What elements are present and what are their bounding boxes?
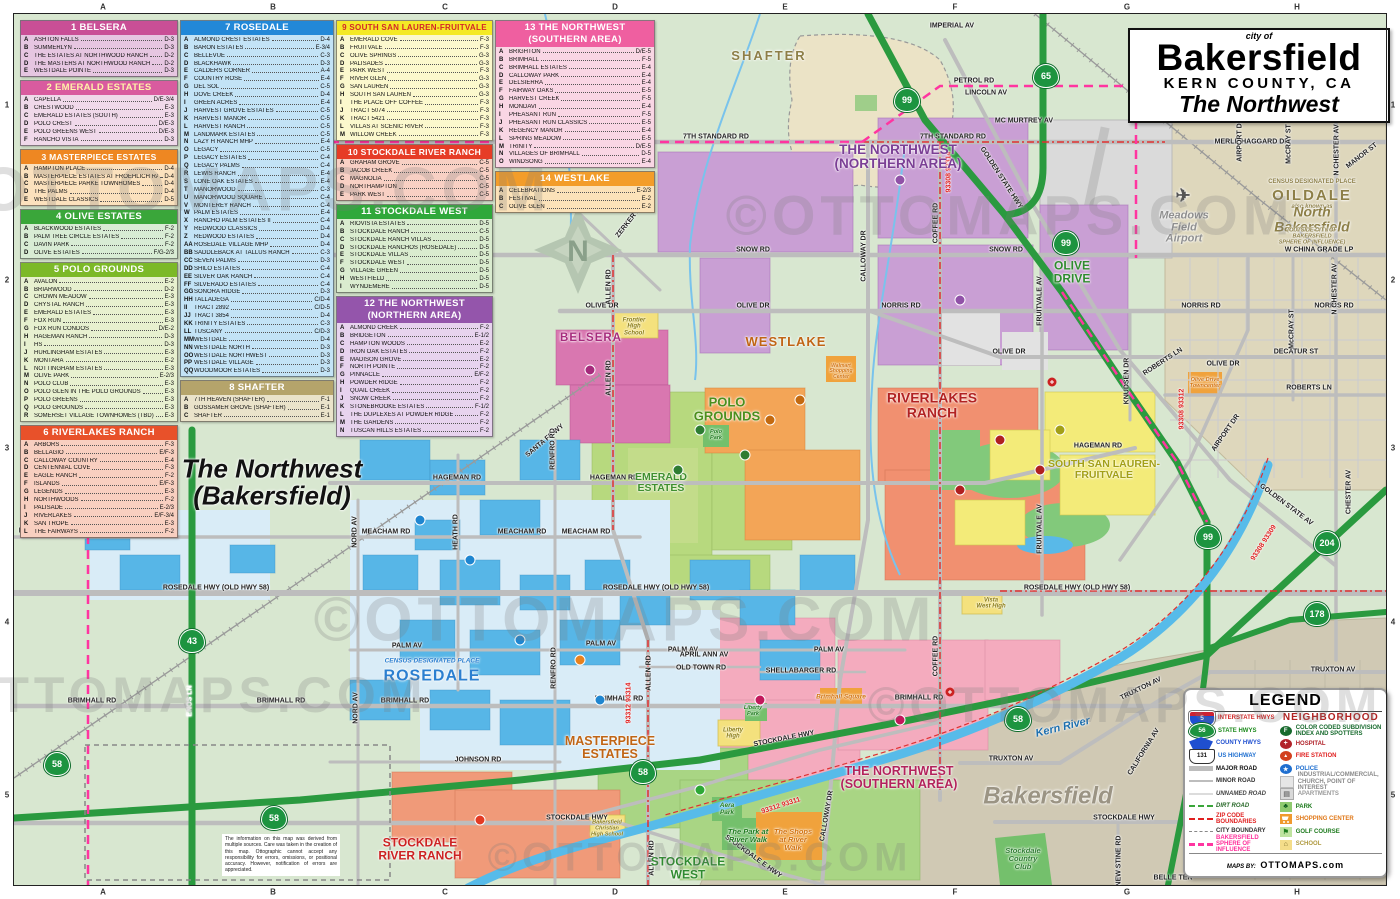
index-entry: DOLIVE ESTATESF/G-2/3: [21, 248, 177, 256]
index-entry: FRIVER GLENG-3: [337, 74, 492, 82]
grid-row-label: 3: [5, 444, 9, 453]
index-entry: ABLACKWOOD ESTATESF-2: [21, 224, 177, 232]
legend-right-column: NEIGHBORHOOD F COLOR CODED SUBDIVISION I…: [1280, 712, 1382, 851]
index-entry: ABRIGHTOND/E-5: [496, 47, 654, 55]
legend-symbol-icon: ⌂: [1280, 840, 1292, 850]
index-entry: VMONTEREY RANCHC-4: [181, 201, 333, 209]
index-entry: DPOLO CRESTD/E-3: [21, 119, 177, 127]
index-entry: AAROSEDALE VILLAGE MHPD-4: [181, 240, 333, 248]
compass-north-label: N: [567, 235, 589, 269]
index-entry: ARIOVISTA ESTATESD-5: [337, 219, 492, 227]
index-entry: OLEGACYC-5: [181, 145, 333, 153]
index-entry: HHAGEMAN RANCHD-3: [21, 332, 177, 340]
index-entry: A7TH HEAVEN (SHAFTER)F-1: [181, 395, 333, 403]
index-entry: EPARK WESTF-3: [337, 67, 492, 75]
legend-item: MAJOR ROAD: [1189, 762, 1280, 775]
title-county: KERN COUNTY, CA: [1130, 76, 1388, 92]
index-entry: GPINNACLEE/F-2: [337, 370, 492, 378]
index-panel-stockdale-west: 11 STOCKDALE WEST ARIOVISTA ESTATESD-5BS…: [336, 204, 493, 293]
index-panel-riverlakes-ranch: 6 RIVERLAKES RANCH AARBORSF-3BBELLAGIOE/…: [20, 425, 178, 538]
index-panel-westlake: 14 WESTLAKE ACELEBRATIONSE-2/3BFESTIVALE…: [495, 171, 655, 213]
index-entry: OOWESTDALE NORTHWESTD-3: [181, 351, 333, 359]
index-entry: GVILLAGE GREEND-5: [337, 266, 492, 274]
index-entry: EPARK WESTC-5: [337, 190, 492, 198]
index-entry: XRANCHO PALM ESTATES IIC-4: [181, 216, 333, 224]
index-entry: BBSADDLEBACK AT TALLUS RANCHC-3: [181, 248, 333, 256]
legend-swatch-icon: [1189, 780, 1213, 782]
legend-symbol-icon: ★: [1280, 764, 1292, 774]
grid-row-label: 5: [5, 791, 9, 800]
index-panel-title: 1 BELSERA: [21, 21, 177, 35]
index-entry: AALMOND CREEKF-2: [337, 323, 492, 331]
legend-swatch-icon: [1189, 805, 1213, 807]
index-entry: FRANCHO VISTAD-3: [21, 135, 177, 143]
index-entry: ACELEBRATIONSE-2/3: [496, 186, 654, 194]
index-entry: IITRACT 2892C/D-5: [181, 303, 333, 311]
index-entry: NNWESTDALE NORTHD-3: [181, 343, 333, 351]
index-panel-south-san-lauren-fruitvale: 9 SOUTH SAN LAUREN-FRUITVALE AEMERALD CO…: [336, 20, 493, 141]
index-entry: JPHEASANT RUN CLASSICSE-5: [496, 118, 654, 126]
legend-item: 131 US HIGHWAY: [1189, 750, 1280, 763]
index-entry: FISLANDSE/F-3: [21, 479, 177, 487]
index-entry: HWESTFIELDD-5: [337, 274, 492, 282]
index-entry: YREDWOOD CLASSICSD-4: [181, 224, 333, 232]
index-entry: LHARVEST RANCHC-5: [181, 122, 333, 130]
index-entry: IPALISADEE-2/3: [21, 503, 177, 511]
index-entry: MLANDMARK ESTATESC-5: [181, 130, 333, 138]
index-entry: MMWESTDALED-4: [181, 335, 333, 343]
legend-item: + HOSPITAL: [1280, 738, 1382, 751]
legend-item: ▲ FIRE STATION: [1280, 750, 1382, 763]
credit-prefix: MAPS BY:: [1227, 864, 1256, 870]
index-entry: EPOLO GREENS WESTD/E-3: [21, 127, 177, 135]
index-entry: WPALM ESTATESE-4: [181, 209, 333, 217]
grid-col-label: H: [1294, 888, 1300, 897]
index-entry: ECALDERS CORNERA-4: [181, 67, 333, 75]
grid-col-label: D: [612, 3, 618, 12]
index-entry: HHTALLADEGAC/D-4: [181, 295, 333, 303]
index-entry: BBARON ESTATESE-3/4: [181, 43, 333, 51]
legend-swatch-icon: [1189, 793, 1213, 795]
legend-item: MINOR ROAD: [1189, 775, 1280, 788]
index-panel-title: 10 STOCKDALE RIVER RANCH: [337, 145, 492, 159]
legend-symbol-icon: [1280, 814, 1292, 824]
index-entry: DTHE PALMSD-4: [21, 187, 177, 195]
index-entry: AARBORSF-3: [21, 440, 177, 448]
index-panel-belsera: 1 BELSERA AASHTON FALLSD-3BSUMMERLYND-3C…: [20, 20, 178, 77]
index-entry: RSOMERSET VILLAGE TOWNHOMES (TBD)E-3: [21, 411, 177, 419]
index-entry: KREGENCY MANORE-4: [496, 126, 654, 134]
index-entry: KKTRINITY ESTATESC-3: [181, 319, 333, 327]
index-entry: BMASTERPIECE ESTATES AT FROEHLICH RANCHD…: [21, 172, 177, 180]
grid-col-label: A: [100, 3, 106, 12]
index-column-3: 9 SOUTH SAN LAUREN-FRUITVALE AEMERALD CO…: [336, 20, 493, 440]
index-entry: QPOLO GROUNDSE-3: [21, 403, 177, 411]
index-entry: CDAVIN PARKF-2: [21, 240, 177, 248]
index-entry: TMANORWOODC-3: [181, 185, 333, 193]
grid-row-label: 1: [5, 101, 9, 110]
index-entry: DSTOCKDALE RANCHOS (ROSEDALE)D-5: [337, 243, 492, 251]
index-entry: HPOWDER RIDGEF-2: [337, 378, 492, 386]
legend-item: ZIP CODE BOUNDARIES: [1189, 813, 1280, 826]
grid-strip-left: 12345: [0, 0, 14, 899]
index-entry: COLIVE GLENE-2: [496, 202, 654, 210]
index-entry: CMAGNOLIAC-5: [337, 174, 492, 182]
index-entry: LTHE FAIRWAYSF-2: [21, 527, 177, 535]
index-panel-olive-estates: 4 OLIVE ESTATES ABLACKWOOD ESTATESF-2BPA…: [20, 209, 178, 259]
index-entry: KHARVEST MANORC-5: [181, 114, 333, 122]
grid-col-label: C: [442, 3, 448, 12]
index-entry: GFOX RUN CONDOSD/E-2: [21, 324, 177, 332]
legend-symbol-icon: F: [1280, 726, 1292, 736]
index-entry: NLAZY H RANCH MHPE-4: [181, 138, 333, 146]
index-entry: GSAN LAURENG-3: [337, 82, 492, 90]
index-panel-polo-grounds: 5 POLO GROUNDS AAVALONE-2BBRIARWOODD-2CC…: [20, 262, 178, 422]
grid-row-label: 1: [1391, 101, 1395, 110]
index-entry: HSOUTH SAN LAURENG-3: [337, 90, 492, 98]
legend-item: 56 STATE HWYS: [1189, 725, 1280, 738]
index-panel-title: 8 SHAFTER: [181, 381, 333, 395]
index-entry: KTRACT 5421F-3: [337, 114, 492, 122]
index-entry: FFOX RUNE-3: [21, 316, 177, 324]
grid-strip-right: 12345: [1386, 0, 1400, 899]
legend-credit: MAPS BY: OTTOMAPS.com: [1189, 853, 1382, 873]
index-entry: EEAGLE RANCHF-2: [21, 471, 177, 479]
title-subtitle: The Northwest: [1130, 92, 1388, 116]
index-entry: BFRUITVALEF-3: [337, 43, 492, 51]
index-entry: GHARVEST CREEKF-5: [496, 94, 654, 102]
index-entry: JSNOW CREEKF-2: [337, 394, 492, 402]
index-entry: IHSD-3: [21, 340, 177, 348]
map-title-block: city of Bakersfield KERN COUNTY, CA The …: [1128, 28, 1390, 123]
grid-col-label: A: [100, 888, 106, 897]
index-entry: FFAIRWAY OAKSE-5: [496, 86, 654, 94]
grid-row-label: 2: [1391, 276, 1395, 285]
index-entry: COLIVE SPRINGSG-3: [337, 51, 492, 59]
index-entry: MWILLOW CREEKF-3: [337, 130, 492, 138]
index-entry: FCOUNTRY ROSEE-4: [181, 74, 333, 82]
index-entry: PPWESTDALE VILLAGED-3: [181, 359, 333, 367]
index-entry: IGREEN ACRESE-4: [181, 98, 333, 106]
index-entry: DTHE MASTERS AT NORTHWOOD RANCHD-2: [21, 59, 177, 67]
index-entry: AGRAHAM GROVEC-5: [337, 159, 492, 167]
index-entry: KMONTARAE-2: [21, 356, 177, 364]
index-panel-title: 4 OLIVE ESTATES: [21, 210, 177, 224]
index-panel-title: 14 WESTLAKE: [496, 172, 654, 186]
legend-item: SHOPPING CENTER: [1280, 813, 1382, 826]
index-entry: CCROWN MEADOWE-3: [21, 293, 177, 301]
index-entry: ESTOCKDALE VILLASD-5: [337, 251, 492, 259]
index-entry: CSTOCKDALE RANCH VILLASD-5: [337, 235, 492, 243]
index-entry: CCALLOWAY COUNTRYE-4: [21, 456, 177, 464]
index-entry: HMONDAVIE-4: [496, 102, 654, 110]
index-entry: OPOLO GLEN IN THE POLO GROUNDSE-3: [21, 387, 177, 395]
grid-col-label: C: [442, 888, 448, 897]
grid-row-label: 5: [1391, 791, 1395, 800]
index-entry: DCALLOWAY PARKE-4: [496, 71, 654, 79]
grid-col-label: D: [612, 888, 618, 897]
index-panel-title: 5 POLO GROUNDS: [21, 263, 177, 277]
grid-col-label: E: [782, 3, 787, 12]
index-panel-masterpiece-estates: 3 MASTERPIECE ESTATES AHAMPTON PLACED-4B…: [20, 149, 178, 206]
index-entry: HDOVE CREEKD-4: [181, 90, 333, 98]
index-panel-shafter: 8 SHAFTER A7TH HEAVEN (SHAFTER)F-1BGOSSA…: [180, 380, 334, 422]
index-entry: BGOSSAMER GROVE (SHAFTER)E-1: [181, 403, 333, 411]
index-entry: CTHE ESTATES AT NORTHWOOD RANCHD-2: [21, 51, 177, 59]
grid-strip-bottom: ABCDEFGH: [0, 885, 1400, 899]
index-entry: SLONE OAK ESTATESE-4: [181, 177, 333, 185]
index-entry: EESILVER OAK RANCHC-4: [181, 272, 333, 280]
index-entry: NVILLAGES OF BRIMHALLD-5: [496, 150, 654, 158]
index-panel-title: 13 THE NORTHWEST (SOUTHERN AREA): [496, 21, 654, 47]
index-entry: AHAMPTON PLACED-4: [21, 164, 177, 172]
legend-symbol-icon: [1280, 776, 1294, 788]
legend-symbol-icon: ▤: [1280, 788, 1294, 800]
index-entry: ACAPELLAD/E-3/4: [21, 95, 177, 103]
index-entry: BSTOCKDALE RANCHC-5: [337, 227, 492, 235]
legend-item: INDUSTRIAL/COMMERCIAL, CHURCH, POINT OF …: [1280, 775, 1382, 788]
index-entry: LLTUSCANYC/D-3: [181, 327, 333, 335]
index-entry: CBELLEVUEC-3: [181, 51, 333, 59]
index-panel-title: 6 RIVERLAKES RANCH: [21, 426, 177, 440]
legend-swatch-icon: [1189, 843, 1213, 846]
index-entry: PPOLO GREENSE-3: [21, 395, 177, 403]
legend-symbol-icon: ⚑: [1280, 827, 1292, 837]
index-entry: CHAMPTON WOODSE-2: [337, 339, 492, 347]
index-panel-title: 7 ROSEDALE: [181, 21, 333, 35]
index-column-1: 1 BELSERA AASHTON FALLSD-3BSUMMERLYND-3C…: [20, 20, 178, 541]
index-entry: MOLIVE PARKE-2/3: [21, 372, 177, 380]
index-entry: DDSHILO ESTATESC-4: [181, 264, 333, 272]
index-entry: BJACOB CREEKC-5: [337, 166, 492, 174]
index-entry: BBRIMHALLF-5: [496, 55, 654, 63]
index-entry: NPOLO CLUBE-3: [21, 379, 177, 387]
legend-symbol-icon: ▲: [1280, 751, 1292, 761]
index-entry: IWYNDEMERED-5: [337, 282, 492, 290]
index-entry: JHARVEST GROVE ESTATESC-5: [181, 106, 333, 114]
index-entry: BBRIDGETONE-1/2: [337, 331, 492, 339]
legend-item: DIRT ROAD: [1189, 800, 1280, 813]
index-entry: JRIVERLAKESE/F-3/4: [21, 511, 177, 519]
index-entry: EMADISON GROVEE-2: [337, 355, 492, 363]
index-entry: GLEGENDSE-3: [21, 487, 177, 495]
index-entry: ZREDWOOD ESTATESD-4: [181, 232, 333, 240]
index-entry: PLEGACY ESTATESC-4: [181, 153, 333, 161]
legend-item: ⚑ GOLF COURSE: [1280, 826, 1382, 839]
grid-strip-top: ABCDEFGH: [0, 0, 1400, 14]
grid-col-label: B: [270, 888, 276, 897]
index-entry: MTRINITYD/E-5: [496, 142, 654, 150]
index-entry: KSTONEBROOKE ESTATESF-1/2: [337, 402, 492, 410]
index-entry: QLEGACY PALMSC-4: [181, 161, 333, 169]
index-entry: IQUAIL CREEKF-2: [337, 386, 492, 394]
index-entry: MTHE GARDENSF-2: [337, 418, 492, 426]
legend-swatch-icon: [1189, 818, 1213, 820]
index-entry: DIRON OAK ESTATESF-2: [337, 347, 492, 355]
index-entry: JTRACT 5074F-3: [337, 106, 492, 114]
legend-swatch-icon: [1189, 831, 1213, 832]
legend-swatch-icon: 131: [1189, 749, 1215, 764]
index-panel-northwest-northern-area: 12 THE NORTHWEST (NORTHERN AREA) AALMOND…: [336, 296, 493, 436]
index-column-4: 13 THE NORTHWEST (SOUTHERN AREA) ABRIGHT…: [495, 20, 655, 216]
index-entry: IPHEASANT RUNF-5: [496, 110, 654, 118]
legend-item: COUNTY HWYS: [1189, 737, 1280, 750]
index-entry: DBLACKHAWKD-3: [181, 59, 333, 67]
index-entry: LTHE DUPLEXES AT POWDER RIDGEF-2: [337, 410, 492, 418]
grid-row-label: 4: [1391, 618, 1395, 627]
index-entry: BBRIARWOODD-2: [21, 285, 177, 293]
index-entry: EWESTDALE POINTED-3: [21, 67, 177, 75]
index-entry: CCSEVEN PALMSD-3: [181, 256, 333, 264]
index-entry: CBRIMHALL ESTATESE-4: [496, 63, 654, 71]
index-panel-title: 2 EMERALD ESTATES: [21, 81, 177, 95]
index-entry: DPALISADESG-3: [337, 59, 492, 67]
index-entry: LVILLAS AT SCENIC RIVERF-3: [337, 122, 492, 130]
grid-col-label: G: [1124, 888, 1130, 897]
index-entry: JJTRACT 3854D-4: [181, 311, 333, 319]
index-entry: DNORTHAMPTONC-5: [337, 182, 492, 190]
index-entry: KSAN TROPEE-3: [21, 519, 177, 527]
index-entry: EWESTDALE CLASSICSD-5: [21, 195, 177, 203]
legend-title: LEGEND: [1189, 692, 1382, 712]
index-entry: DCENTENNIAL COVEF-3: [21, 464, 177, 472]
index-entry: BCRESTWOODE-3: [21, 103, 177, 111]
index-entry: AALMOND CREST ESTATESD-4: [181, 35, 333, 43]
index-panel-title: 11 STOCKDALE WEST: [337, 205, 492, 219]
index-panel-emerald-estates: 2 EMERALD ESTATES ACAPELLAD/E-3/4BCRESTW…: [20, 80, 178, 145]
grid-col-label: E: [782, 888, 787, 897]
disclaimer-note: The information on this map was derived …: [222, 834, 340, 876]
index-entry: GDEL SOLC-5: [181, 82, 333, 90]
legend-swatch-icon: 56: [1189, 723, 1215, 738]
credit-brand: OTTOMAPS.com: [1260, 860, 1344, 870]
bakersfield-northwest-map: { "title_block":{"city_of":"city of","ci…: [0, 0, 1400, 899]
grid-col-label: H: [1294, 3, 1300, 12]
index-entry: GGSONORA RIDGED-3: [181, 288, 333, 296]
index-panel-stockdale-river-ranch: 10 STOCKDALE RIVER RANCH AGRAHAM GROVEC-…: [336, 144, 493, 201]
index-entry: CMASTERPIECE PARKE TOWNHOMESD-4: [21, 180, 177, 188]
index-entry: AEMERALD COVEF-3: [337, 35, 492, 43]
grid-row-label: 3: [1391, 444, 1395, 453]
legend-item: ⌂ SCHOOL: [1280, 838, 1382, 851]
index-entry: BSUMMERLYND-3: [21, 43, 177, 51]
index-entry: AAVALONE-2: [21, 277, 177, 285]
index-entry: BBELLAGIOE/F-3: [21, 448, 177, 456]
index-entry: FFSILVERADO ESTATESC-4: [181, 280, 333, 288]
legend-item: ♣ PARK: [1280, 801, 1382, 814]
index-entry: LNOTTINGHAM ESTATESE-3: [21, 364, 177, 372]
index-entry: CSHAFTERE-1: [181, 411, 333, 419]
index-entry: HNORTHWOODSF-2: [21, 495, 177, 503]
grid-col-label: B: [270, 3, 276, 12]
legend-swatch-icon: [1189, 766, 1213, 771]
index-entry: BFESTIVALE-2: [496, 194, 654, 202]
legend-box: LEGEND 5 INTERSTATE HWYS 56 STATE HWYS C…: [1183, 688, 1388, 878]
index-entry: UMANORWOOD SQUAREC-4: [181, 193, 333, 201]
index-entry: LSPRING MEADOWE-5: [496, 134, 654, 142]
legend-symbol-icon: ♣: [1280, 802, 1292, 812]
index-entry: FSTOCKDALE WESTD-5: [337, 258, 492, 266]
grid-row-label: 2: [5, 276, 9, 285]
grid-col-label: F: [953, 888, 958, 897]
index-entry: CEMERALD ESTATES (SOUTH)E-3: [21, 111, 177, 119]
index-entry: BPALM TREE CIRCLE ESTATESF-2: [21, 232, 177, 240]
legend-item: UNNAMED ROAD: [1189, 788, 1280, 801]
index-column-2: 7 ROSEDALE AALMOND CREST ESTATESD-4BBARO…: [180, 20, 334, 425]
index-panel-title: 9 SOUTH SAN LAUREN-FRUITVALE: [337, 21, 492, 35]
grid-col-label: F: [953, 3, 958, 12]
legend-item: BAKERSFIELD SPHERE OF INFLUENCE: [1189, 838, 1280, 851]
index-entry: EEMERALD ESTATESE-3: [21, 308, 177, 316]
index-entry: EDELSIERRAE-4: [496, 79, 654, 87]
index-entry: JHURLINGHAM ESTATESE-3: [21, 348, 177, 356]
index-panel-northwest-southern-area: 13 THE NORTHWEST (SOUTHERN AREA) ABRIGHT…: [495, 20, 655, 168]
legend-left-column: 5 INTERSTATE HWYS 56 STATE HWYS COUNTY H…: [1189, 712, 1280, 851]
index-entry: NTUSCAN HILLS ESTATESF-2: [337, 426, 492, 434]
legend-item: F COLOR CODED SUBDIVISION INDEX AND SPOT…: [1280, 725, 1382, 738]
index-entry: RLEWIS RANCHE-4: [181, 169, 333, 177]
index-entry: DCRYSTAL RANCHE-3: [21, 300, 177, 308]
grid-row-label: 4: [5, 618, 9, 627]
index-entry: ITHE PLACE OFF COFFEEF-3: [337, 98, 492, 106]
grid-col-label: G: [1124, 3, 1130, 12]
index-entry: FNORTH POINTEF-2: [337, 363, 492, 371]
title-city: Bakersfield: [1130, 40, 1388, 76]
legend-neighborhood-header: NEIGHBORHOOD: [1280, 712, 1382, 725]
index-entry: AASHTON FALLSD-3: [21, 35, 177, 43]
index-panel-title: 3 MASTERPIECE ESTATES: [21, 150, 177, 164]
index-panel-title: 12 THE NORTHWEST (NORTHERN AREA): [337, 297, 492, 323]
legend-symbol-icon: +: [1280, 739, 1292, 749]
index-entry: QQWOODMOOR ESTATESD-3: [181, 366, 333, 374]
index-panel-rosedale: 7 ROSEDALE AALMOND CREST ESTATESD-4BBARO…: [180, 20, 334, 377]
index-entry: OWINDSONGE-4: [496, 157, 654, 165]
